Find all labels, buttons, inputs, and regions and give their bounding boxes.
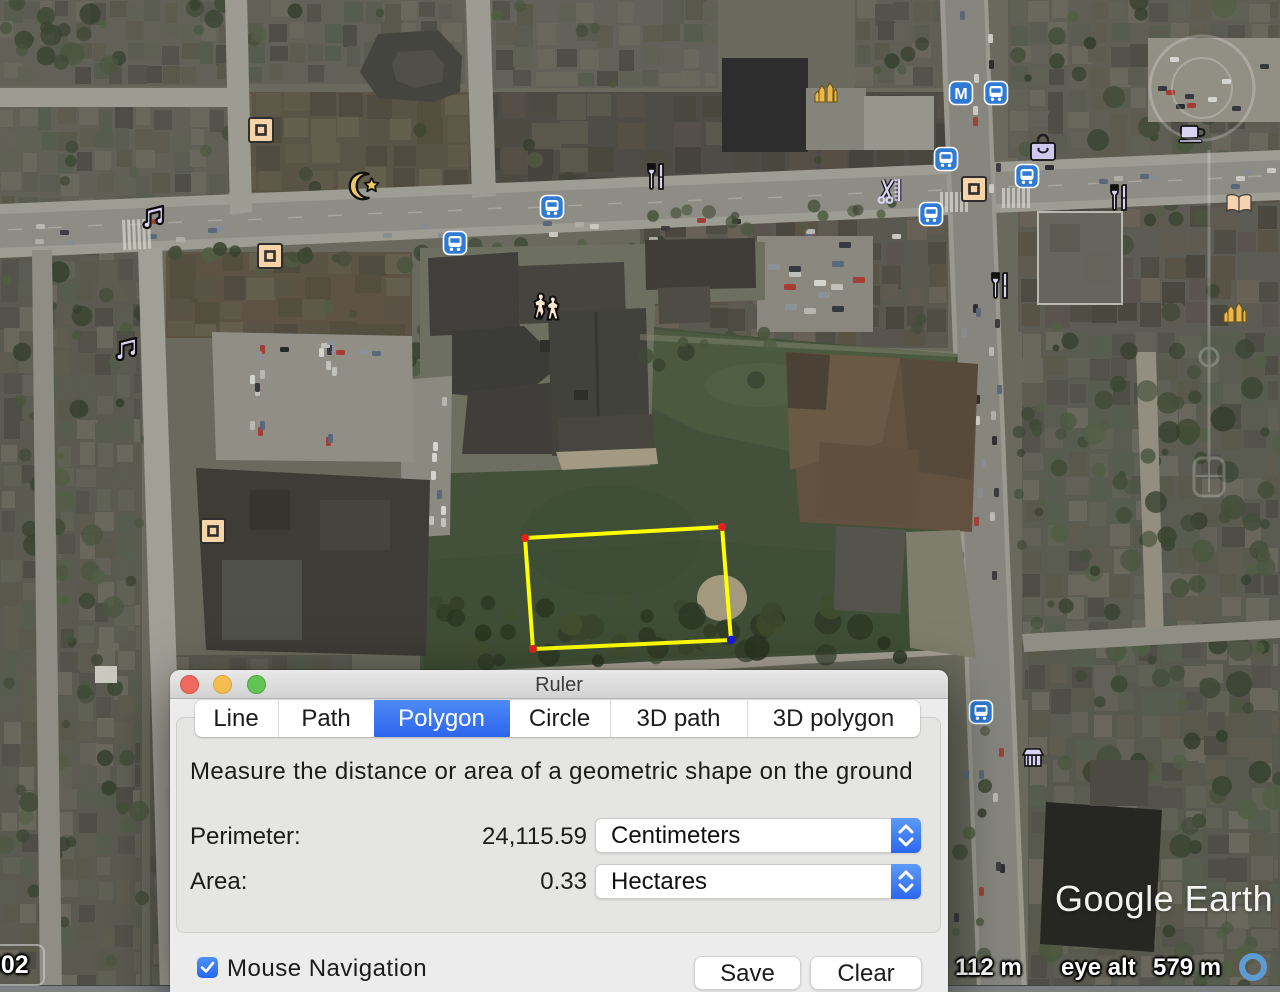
svg-text:M: M	[954, 86, 967, 103]
